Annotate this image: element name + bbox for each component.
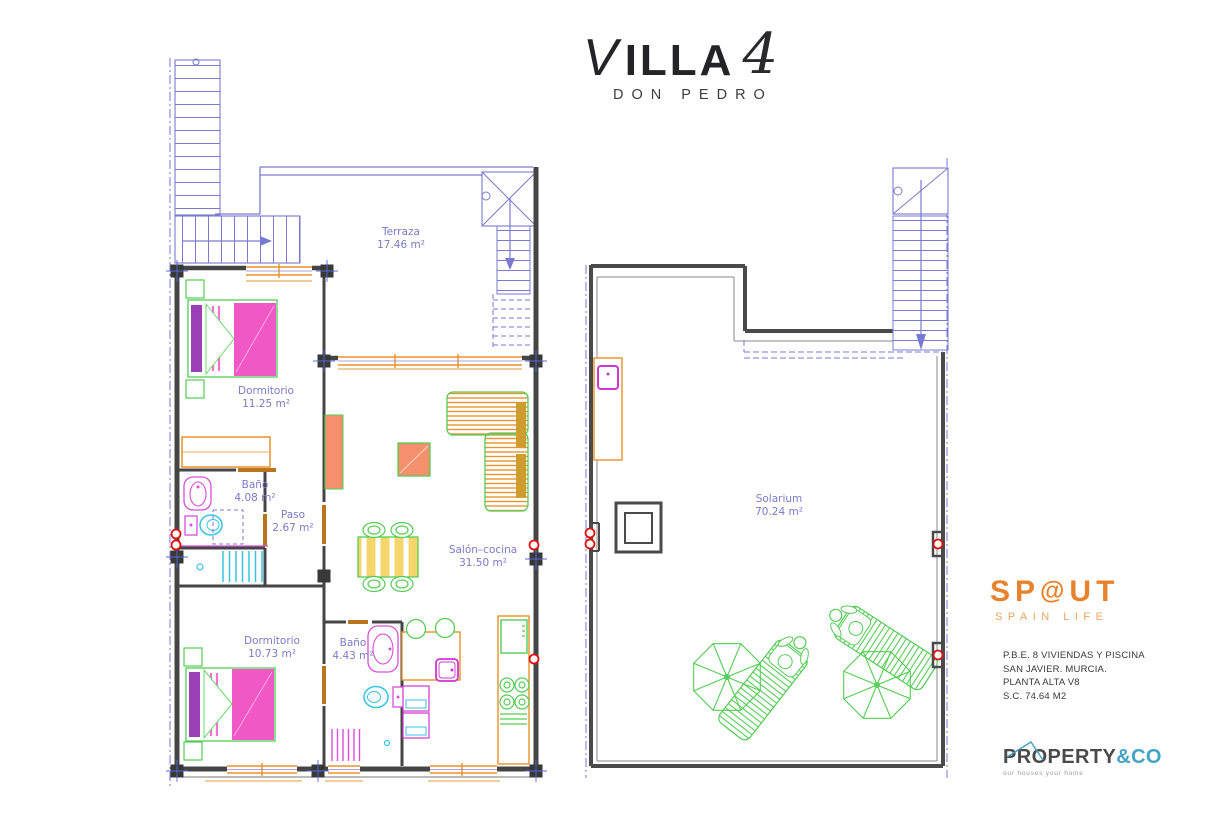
laundry-fixtures — [197, 551, 267, 582]
project-info: P.B.E. 8 VIVIENDAS Y PISCINA SAN JAVIER.… — [1003, 649, 1145, 703]
left-plan — [166, 58, 547, 788]
roof-icon — [1003, 739, 1047, 761]
room-label-dormitorio-1: Dormitorio 11.25 m² — [238, 385, 294, 411]
room-name: Terraza — [377, 226, 425, 239]
room-label-dormitorio-2: Dormitorio 10.73 m² — [244, 635, 300, 661]
project-line: P.B.E. 8 VIVIENDAS Y PISCINA — [1003, 649, 1145, 663]
floorplan-drawing — [0, 0, 1221, 838]
project-line: SAN JAVIER. MURCIA. — [1003, 663, 1145, 677]
villa-logo: VILLA 4 DON PEDRO — [583, 34, 823, 103]
room-name: Solarium — [755, 493, 803, 506]
room-area: 4.43 m² — [332, 650, 373, 663]
room-area: 4.08 m² — [234, 492, 275, 505]
property-co-suffix: &CO — [1116, 746, 1162, 768]
property-co-name: PROPERTY&CO — [1003, 746, 1162, 769]
room-area: 17.46 m² — [377, 239, 425, 252]
outdoor-counter — [594, 358, 622, 460]
room-name: Baño — [332, 637, 373, 650]
room-label-bano-2: Baño 4.43 m² — [332, 637, 373, 663]
villa-logo-title: VILLA — [583, 34, 734, 85]
bedroom-1-furniture — [182, 280, 277, 467]
room-label-solarium: Solarium 70.24 m² — [755, 493, 803, 519]
room-name: Baño — [234, 479, 275, 492]
sun-loungers — [694, 596, 940, 743]
spout-logo-right: UT — [1069, 575, 1119, 608]
project-line: PLANTA ALTA V8 — [1003, 676, 1145, 690]
floor-plan-page: VILLA 4 DON PEDRO Terraza 17.46 m² Dormi… — [0, 0, 1221, 838]
room-area: 31.50 m² — [449, 557, 517, 570]
villa-logo-subtitle: DON PEDRO — [613, 87, 823, 103]
room-label-paso: Paso 2.67 m² — [272, 509, 313, 535]
room-label-terraza: Terraza 17.46 m² — [377, 226, 425, 252]
room-area: 11.25 m² — [238, 398, 294, 411]
villa-logo-row: VILLA 4 — [583, 34, 823, 85]
room-area: 10.73 m² — [244, 648, 300, 661]
spout-logo-tagline: SPAIN LIFE — [995, 611, 1150, 623]
room-name: Dormitorio — [244, 635, 300, 648]
room-label-bano-1: Baño 4.08 m² — [234, 479, 275, 505]
room-name: Paso — [272, 509, 313, 522]
spout-logo-left: SP — [990, 575, 1040, 608]
spout-logo: SP@UT SPAIN LIFE — [990, 577, 1150, 623]
room-name: Salón–cocina — [449, 544, 517, 557]
skylight — [616, 503, 661, 552]
villa-logo-number: 4 — [742, 30, 778, 80]
spout-logo-name: SP@UT — [990, 577, 1150, 608]
right-plan — [586, 158, 949, 778]
room-area: 2.67 m² — [272, 522, 313, 535]
kitchen-furniture — [402, 616, 529, 764]
property-co-logo: PROPERTY&CO our houses your home — [1003, 746, 1162, 777]
room-name: Dormitorio — [238, 385, 294, 398]
project-line: S.C. 74.64 M2 — [1003, 690, 1145, 704]
property-co-tagline: our houses your home — [1003, 770, 1162, 777]
interior-staircase — [482, 172, 536, 348]
bedroom-2-furniture — [184, 648, 275, 760]
room-label-salon-cocina: Salón–cocina 31.50 m² — [449, 544, 517, 570]
spout-swirl-icon: @ — [1040, 577, 1069, 605]
room-area: 70.24 m² — [755, 506, 803, 519]
external-staircase — [175, 59, 300, 263]
